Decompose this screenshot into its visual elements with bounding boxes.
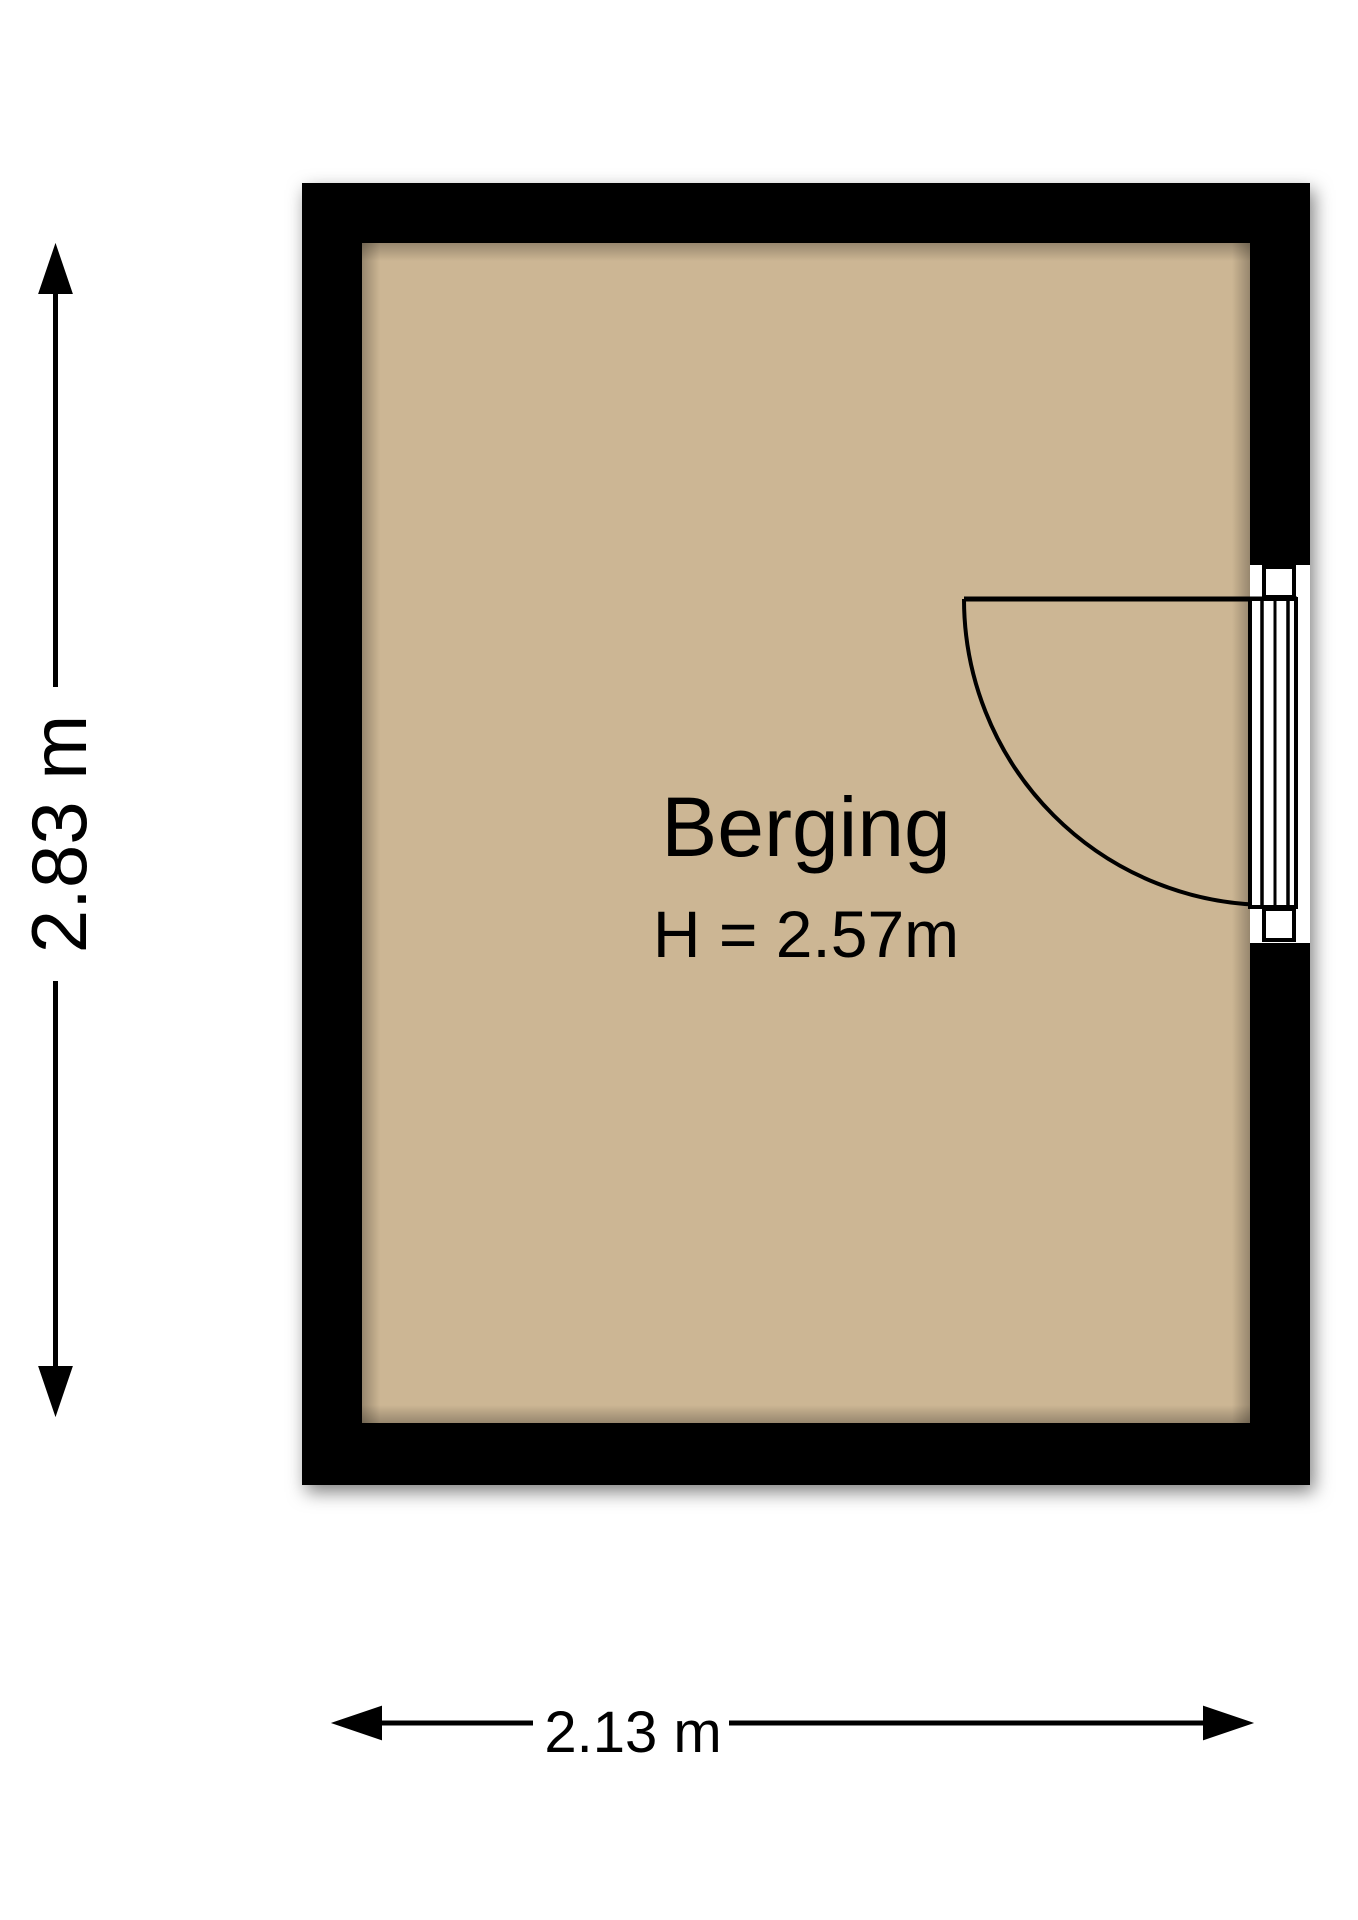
- room-height-label: H = 2.57m: [653, 897, 959, 971]
- door-jamb-top: [1264, 567, 1294, 597]
- dimension-vertical: 2.83 m: [15, 246, 103, 1414]
- floorplan-svg: 2.83 m 2.13 m Berging H = 2.57m: [0, 0, 1358, 1920]
- dimension-horizontal: 2.13 m: [334, 1700, 1251, 1765]
- arrowhead-up-icon: [40, 246, 72, 293]
- floor-shade-left: [362, 243, 380, 1423]
- floor-shade-top: [362, 243, 1250, 261]
- arrowhead-right-icon: [1204, 1707, 1251, 1739]
- dimension-width-label: 2.13 m: [544, 1700, 721, 1765]
- floor-shade-right: [1232, 243, 1250, 1423]
- door-jamb-bottom: [1264, 909, 1294, 940]
- floor-shade-bottom: [362, 1405, 1250, 1423]
- room-name-label: Berging: [661, 780, 951, 874]
- dimension-height-label: 2.83 m: [15, 715, 103, 953]
- floorplan-canvas: 2.83 m 2.13 m Berging H = 2.57m: [0, 0, 1358, 1920]
- arrowhead-left-icon: [334, 1707, 381, 1739]
- arrowhead-down-icon: [40, 1367, 72, 1414]
